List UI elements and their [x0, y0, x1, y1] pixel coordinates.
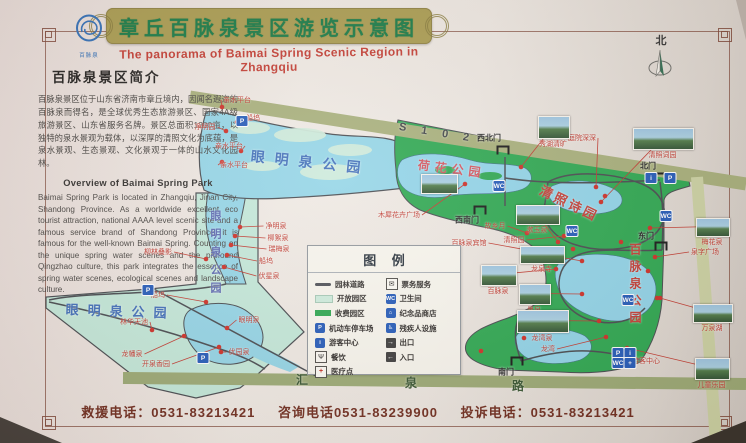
medical-icon: +	[315, 366, 327, 378]
legend-item: 开放园区	[315, 292, 386, 307]
legend-item-label: 纪念品商店	[400, 308, 437, 319]
legend-item-label: 残疾人设施	[400, 323, 437, 334]
legend-item: ⌂纪念品商店	[386, 306, 457, 321]
sign-photo: 章丘百脉泉景区游览示意图 百脉泉 The panorama of Baimai …	[0, 0, 746, 443]
rescue-phone: 救援电话：0531-83213421	[81, 405, 255, 420]
compass-needle-icon	[647, 48, 675, 84]
visitor-center-icon: i	[315, 338, 325, 348]
legend-item: ←入口	[386, 350, 457, 365]
page-title: 章丘百脉泉景区游览示意图	[119, 12, 419, 41]
cloud-ornament-icon	[425, 14, 449, 38]
legend-left-column: 园林道路开放园区收费园区P机动车停车场i游客中心Ψ餐饮+医疗点	[315, 277, 386, 379]
legend-item: WC卫生间	[386, 292, 457, 307]
title-banner: 章丘百脉泉景区游览示意图	[106, 8, 432, 44]
legend-item: Ψ餐饮	[315, 350, 386, 365]
legend-item: +医疗点	[315, 365, 386, 380]
legend-item: 园林道路	[315, 277, 386, 292]
legend-title: 图 例	[308, 246, 460, 273]
legend-item-label: 开放园区	[337, 293, 367, 304]
parking-icon: P	[315, 323, 325, 333]
consult-phone: 咨询电话0531-83239900	[278, 405, 438, 420]
legend-item-label: 机动车停车场	[329, 323, 373, 334]
legend-right-column: ✉票务服务WC卫生间⌂纪念品商店♿残疾人设施→出口←入口	[386, 277, 457, 379]
legend-item-label: 卫生间	[400, 293, 422, 304]
legend-item-label: 出口	[400, 337, 415, 348]
food-icon: Ψ	[315, 351, 327, 363]
photo-corner-shadow	[736, 0, 746, 40]
ticket-icon: ✉	[386, 278, 398, 290]
legend-item-label: 入口	[400, 352, 415, 363]
legend-item: ✉票务服务	[386, 277, 457, 292]
legend-item-label: 园林道路	[335, 279, 365, 290]
exit-icon: →	[386, 338, 396, 348]
page-subtitle-en: The panorama of Baimai Spring Scenic Reg…	[96, 44, 442, 76]
legend-item: i游客中心	[315, 335, 386, 350]
legend-item: ♿残疾人设施	[386, 321, 457, 336]
souvenir-shop-icon: ⌂	[386, 308, 396, 318]
toilet-icon: WC	[386, 294, 396, 304]
paid-area-icon	[315, 310, 331, 316]
photo-corner-shadow	[0, 417, 62, 443]
legend-item-label: 餐饮	[331, 352, 346, 363]
open-area-icon	[315, 295, 333, 303]
legend-item-label: 票务服务	[402, 279, 432, 290]
north-label: 北	[646, 32, 676, 48]
entrance-icon: ←	[386, 352, 396, 362]
accessible-icon: ♿	[386, 323, 396, 333]
logo-swirl-icon	[74, 14, 104, 46]
photo-corner-shadow	[691, 421, 746, 443]
legend-item-label: 收费园区	[335, 308, 365, 319]
complaint-phone: 投诉电话：0531-83213421	[461, 405, 635, 420]
compass: 北	[646, 32, 676, 89]
legend-item-label: 医疗点	[331, 366, 353, 377]
phone-footer: 救援电话：0531-83213421 咨询电话0531-83239900 投诉电…	[0, 402, 716, 421]
legend-item: →出口	[386, 335, 457, 350]
garden-road-icon	[315, 283, 331, 286]
legend-item-label: 游客中心	[329, 337, 359, 348]
legend-box: 图 例 园林道路开放园区收费园区P机动车停车场i游客中心Ψ餐饮+医疗点 ✉票务服…	[307, 245, 461, 375]
legend-item: P机动车停车场	[315, 321, 386, 336]
legend-item: 收费园区	[315, 306, 386, 321]
